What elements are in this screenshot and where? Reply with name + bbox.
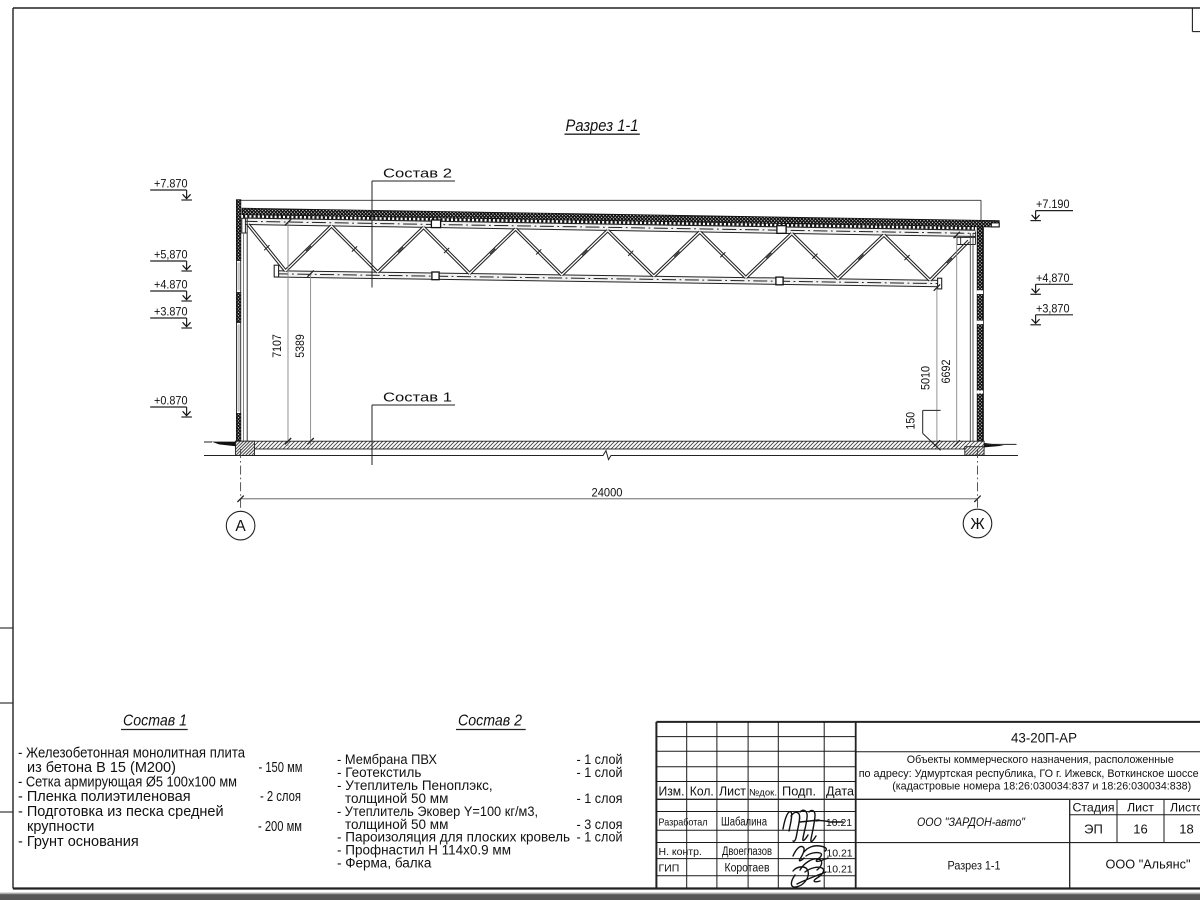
svg-text:№док.: №док. bbox=[749, 788, 777, 799]
svg-text:+4,870: +4,870 bbox=[1036, 271, 1070, 285]
svg-text:+3,870: +3,870 bbox=[1036, 301, 1070, 315]
svg-text:Объекты коммерческого назначен: Объекты коммерческого назначения, распол… bbox=[907, 754, 1174, 766]
svg-text:+4.870: +4.870 bbox=[154, 278, 188, 292]
svg-text:- Ферма, балка: - Ферма, балка bbox=[337, 856, 432, 871]
svg-text:16: 16 bbox=[1133, 822, 1147, 837]
svg-text:Подп.: Подп. bbox=[782, 784, 816, 799]
svg-text:10.21: 10.21 bbox=[826, 847, 852, 859]
svg-text:Разработал: Разработал bbox=[659, 817, 708, 829]
svg-text:ГИП: ГИП bbox=[659, 863, 680, 875]
svg-text:- Пленка полиэтиленовая: - Пленка полиэтиленовая bbox=[18, 789, 191, 805]
svg-text:Н. контр.: Н. контр. bbox=[659, 846, 702, 858]
svg-text:- 1 слой: - 1 слой bbox=[577, 765, 623, 780]
svg-text:Состав 2: Состав 2 bbox=[458, 713, 522, 730]
svg-text:А: А bbox=[235, 518, 246, 535]
svg-text:Ж: Ж bbox=[970, 516, 985, 533]
svg-text:Лист: Лист bbox=[1127, 801, 1155, 815]
svg-text:Изм.: Изм. bbox=[659, 784, 685, 799]
svg-text:6692: 6692 bbox=[939, 359, 953, 383]
svg-text:24000: 24000 bbox=[592, 486, 623, 500]
svg-text:10.21: 10.21 bbox=[826, 864, 852, 876]
svg-text:+3.870: +3.870 bbox=[154, 305, 188, 319]
svg-text:10.21: 10.21 bbox=[826, 817, 852, 829]
svg-text:Стадия: Стадия bbox=[1073, 801, 1115, 815]
svg-text:+0.870: +0.870 bbox=[154, 394, 188, 408]
svg-text:ЭП: ЭП bbox=[1084, 822, 1103, 837]
svg-text:Двоеглазов: Двоеглазов bbox=[722, 846, 772, 858]
svg-text:крупности: крупности bbox=[27, 819, 94, 835]
svg-text:150: 150 bbox=[903, 412, 917, 430]
svg-text:Коротаев: Коротаев bbox=[725, 863, 770, 875]
svg-text:43-20П-АР: 43-20П-АР bbox=[1011, 730, 1077, 746]
svg-text:Листов: Листов bbox=[1170, 801, 1200, 815]
svg-text:- Подготовка из песка средней: - Подготовка из песка средней bbox=[18, 804, 224, 820]
svg-text:+7.870: +7.870 bbox=[154, 177, 188, 191]
svg-text:Состав 2: Состав 2 bbox=[383, 167, 452, 181]
svg-text:+7.190: +7.190 bbox=[1036, 197, 1070, 211]
svg-text:Разрез 1-1: Разрез 1-1 bbox=[948, 859, 1001, 873]
svg-text:Кол.: Кол. bbox=[690, 784, 714, 799]
svg-text:+5,870: +5,870 bbox=[154, 248, 188, 262]
svg-text:- 200 мм: - 200 мм bbox=[258, 819, 302, 835]
svg-text:Состав 1: Состав 1 bbox=[383, 391, 452, 405]
svg-text:7107: 7107 bbox=[270, 334, 284, 358]
svg-text:- 1 слоя: - 1 слоя bbox=[577, 791, 623, 806]
svg-text:ООО "ЗАРДОН-авто": ООО "ЗАРДОН-авто" bbox=[917, 815, 1026, 829]
svg-text:ООО "Альянс": ООО "Альянс" bbox=[1106, 858, 1191, 872]
svg-text:- 2 слоя: - 2 слоя bbox=[260, 789, 301, 805]
svg-text:- 150 мм: - 150 мм bbox=[259, 760, 303, 776]
svg-text:Лист: Лист bbox=[719, 784, 746, 799]
svg-text:Шабалина: Шабалина bbox=[721, 817, 767, 829]
svg-text:18: 18 bbox=[1179, 822, 1193, 837]
svg-text:Дата: Дата bbox=[826, 784, 855, 799]
svg-text:5010: 5010 bbox=[918, 366, 932, 390]
svg-text:5389: 5389 bbox=[293, 334, 307, 358]
svg-text:- 1 слой: - 1 слой bbox=[577, 830, 623, 845]
svg-text:Разрез 1-1: Разрез 1-1 bbox=[566, 117, 639, 135]
svg-text:Состав 1: Состав 1 bbox=[123, 713, 187, 730]
svg-text:по адресу: Удмуртская республи: по адресу: Удмуртская республика, ГО г. … bbox=[859, 768, 1199, 780]
svg-text:- Грунт основания: - Грунт основания bbox=[18, 834, 139, 850]
svg-text:(кадастровые номера 18:26:0300: (кадастровые номера 18:26:030034:837 и 1… bbox=[892, 781, 1191, 793]
